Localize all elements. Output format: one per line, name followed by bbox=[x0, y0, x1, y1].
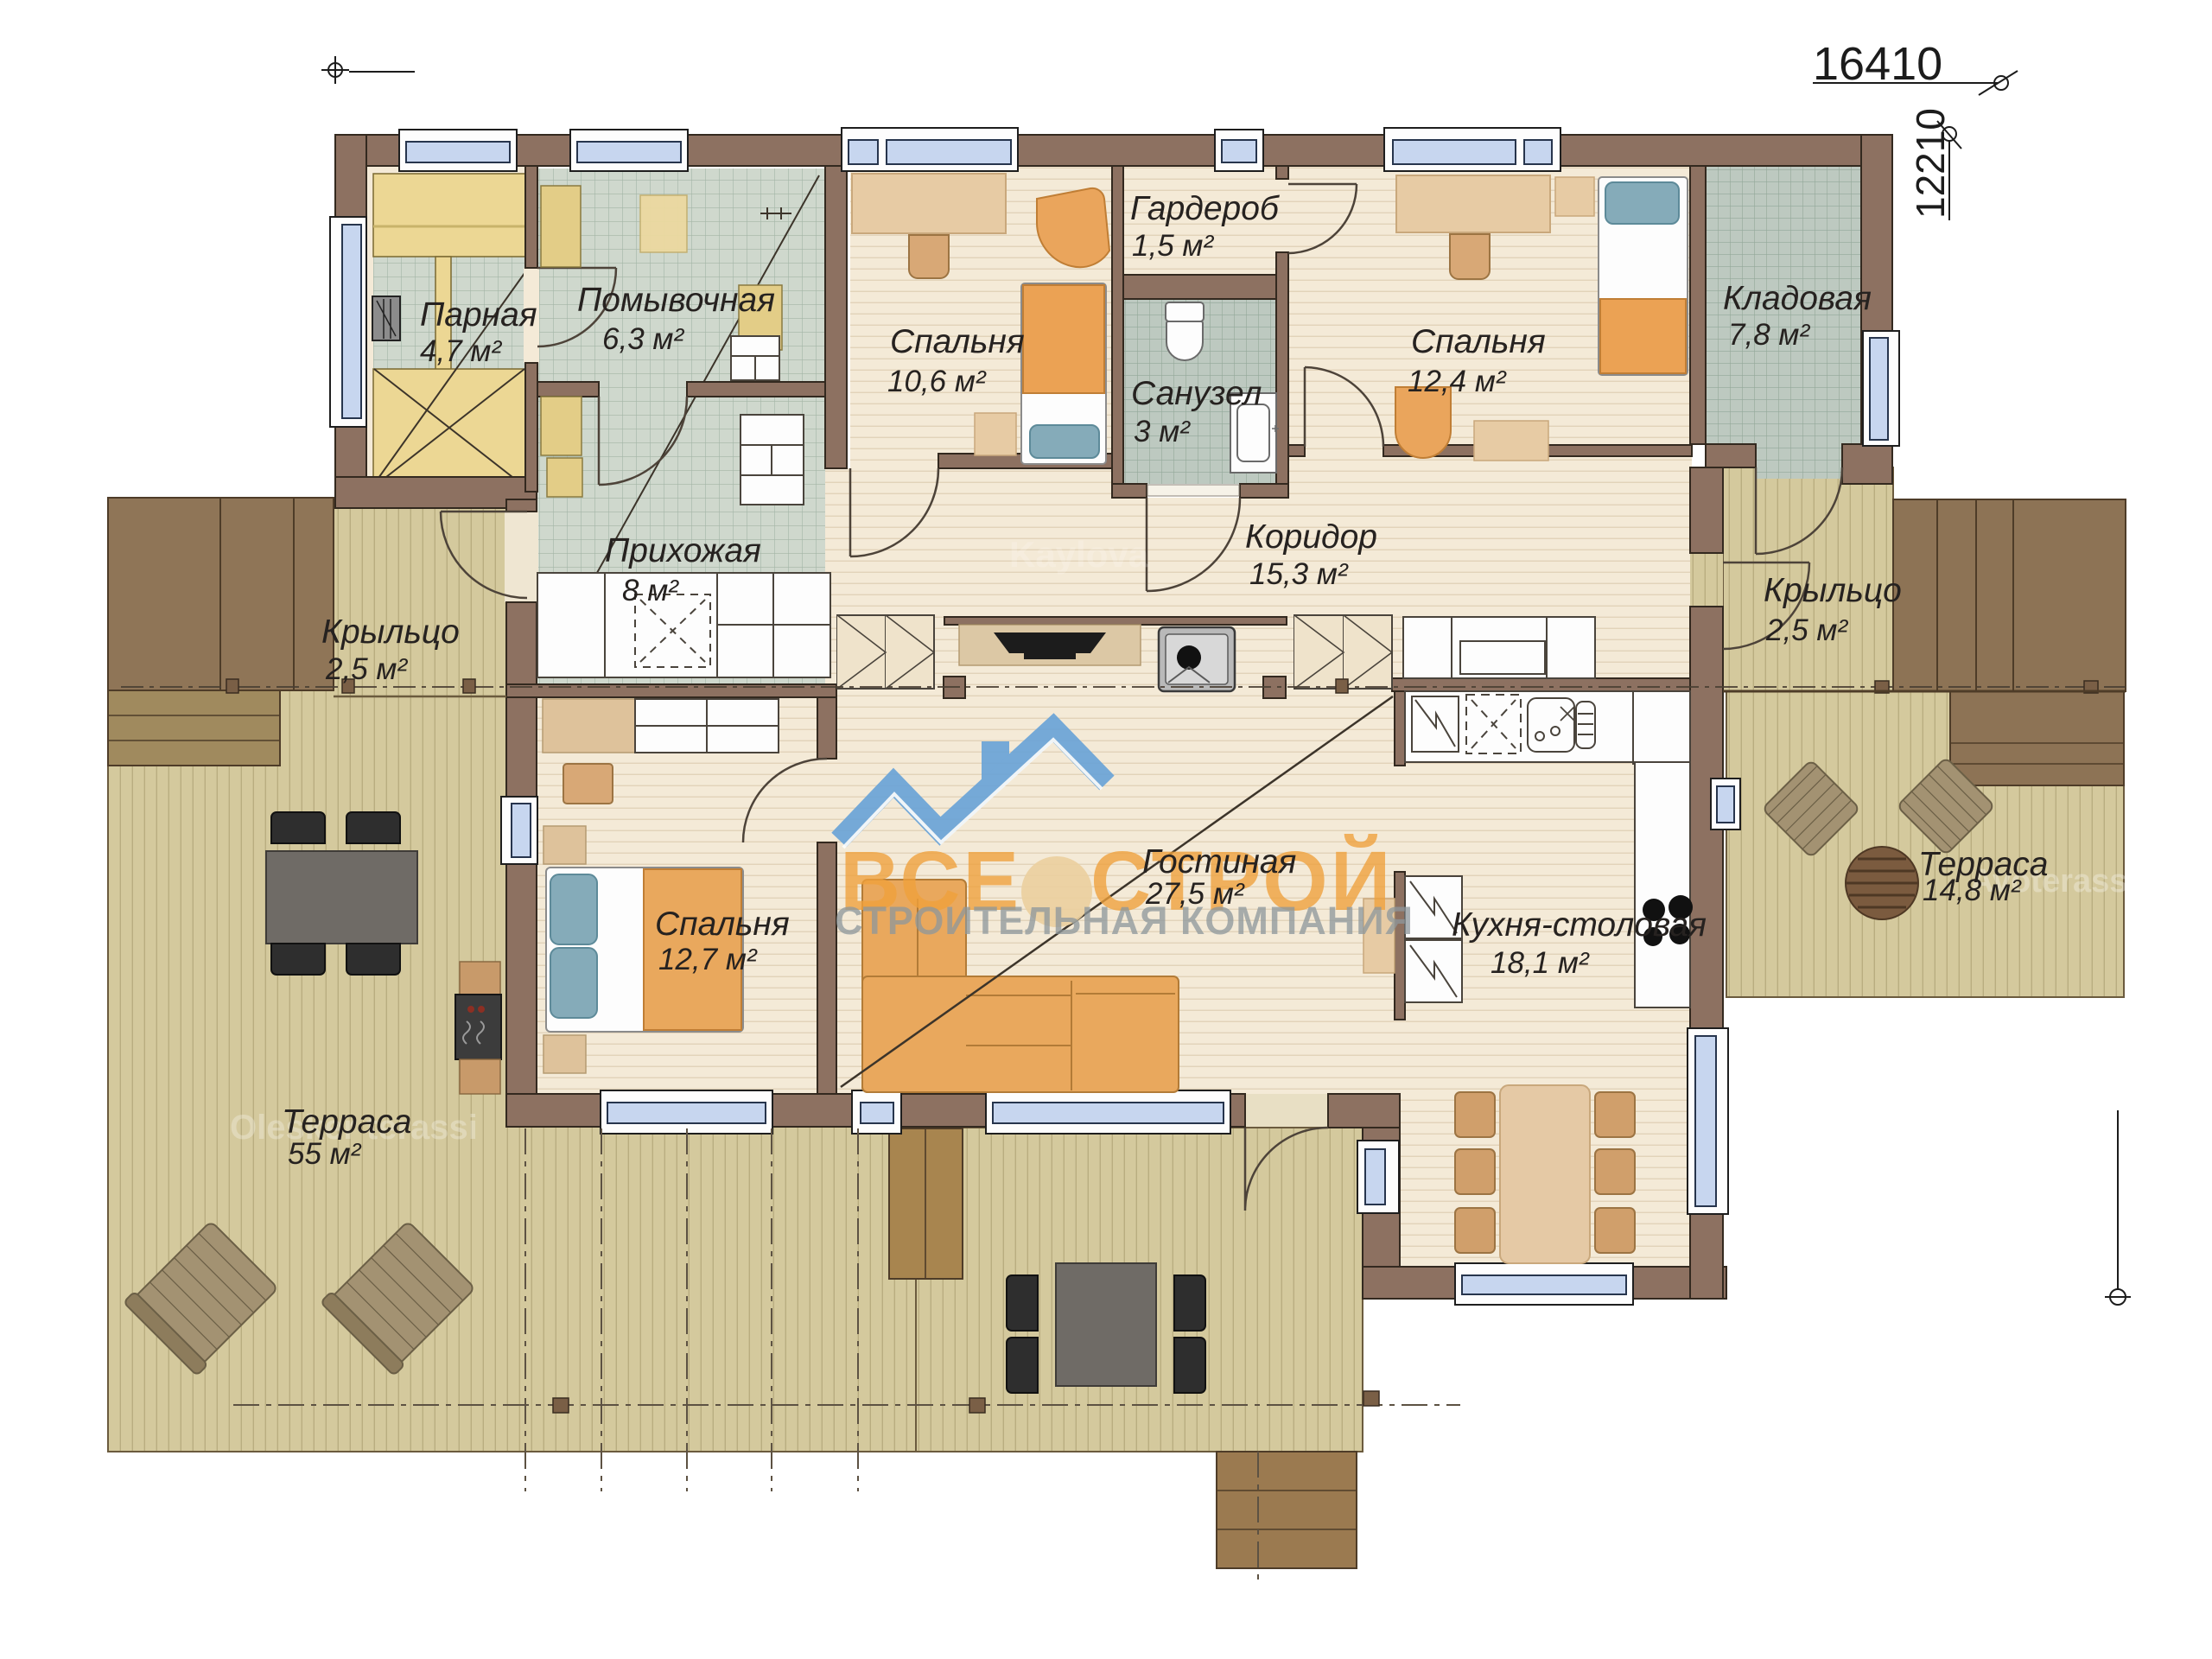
svg-text:Кладовая: Кладовая bbox=[1723, 280, 1872, 317]
svg-text:Крыльцо: Крыльцо bbox=[1764, 572, 1902, 609]
svg-text:Парная: Парная bbox=[420, 296, 537, 334]
svg-text:Крыльцо: Крыльцо bbox=[321, 613, 460, 651]
svg-text:27,5 м²: 27,5 м² bbox=[1145, 877, 1245, 911]
svg-text:Коридор: Коридор bbox=[1245, 518, 1377, 556]
svg-text:Гардероб: Гардероб bbox=[1130, 190, 1281, 227]
svg-text:СТРОИТЕЛЬНАЯ КОМПАНИЯ: СТРОИТЕЛЬНАЯ КОМПАНИЯ bbox=[835, 899, 1414, 943]
svg-text:Спальня: Спальня bbox=[1411, 323, 1546, 360]
svg-text:Гостиная: Гостиная bbox=[1142, 843, 1297, 880]
svg-text:10,6 м²: 10,6 м² bbox=[887, 365, 987, 398]
svg-text:Помывочная: Помывочная bbox=[577, 282, 775, 319]
svg-text:Спальня: Спальня bbox=[890, 323, 1025, 360]
svg-text:Кухня-столовая: Кухня-столовая bbox=[1452, 906, 1707, 944]
svg-text:14,8 м²: 14,8 м² bbox=[1923, 874, 2022, 907]
svg-text:8 м²: 8 м² bbox=[622, 574, 679, 607]
svg-text:Kaylova: Kaylova bbox=[1009, 534, 1149, 575]
svg-text:1,5 м²: 1,5 м² bbox=[1132, 229, 1214, 263]
svg-text:12,4 м²: 12,4 м² bbox=[1408, 365, 1507, 398]
svg-text:6,3 м²: 6,3 м² bbox=[602, 322, 684, 356]
svg-text:7,8 м²: 7,8 м² bbox=[1728, 318, 1810, 352]
svg-text:12,7 м²: 12,7 м² bbox=[658, 943, 758, 976]
svg-text:2,5 м²: 2,5 м² bbox=[325, 652, 408, 686]
svg-text:2,5 м²: 2,5 м² bbox=[1765, 613, 1848, 647]
svg-text:Прихожая: Прихожая bbox=[605, 532, 761, 569]
svg-text:12210: 12210 bbox=[1908, 108, 1953, 219]
svg-text:55 м²: 55 м² bbox=[288, 1137, 362, 1171]
svg-text:3 м²: 3 м² bbox=[1134, 415, 1191, 448]
svg-text:4,7 м²: 4,7 м² bbox=[420, 334, 502, 368]
svg-text:Спальня: Спальня bbox=[655, 906, 790, 943]
svg-text:15,3 м²: 15,3 м² bbox=[1249, 557, 1349, 591]
svg-text:Терраса: Терраса bbox=[282, 1103, 411, 1141]
svg-text:18,1 м²: 18,1 м² bbox=[1491, 946, 1590, 980]
svg-text:Санузел: Санузел bbox=[1131, 375, 1262, 412]
